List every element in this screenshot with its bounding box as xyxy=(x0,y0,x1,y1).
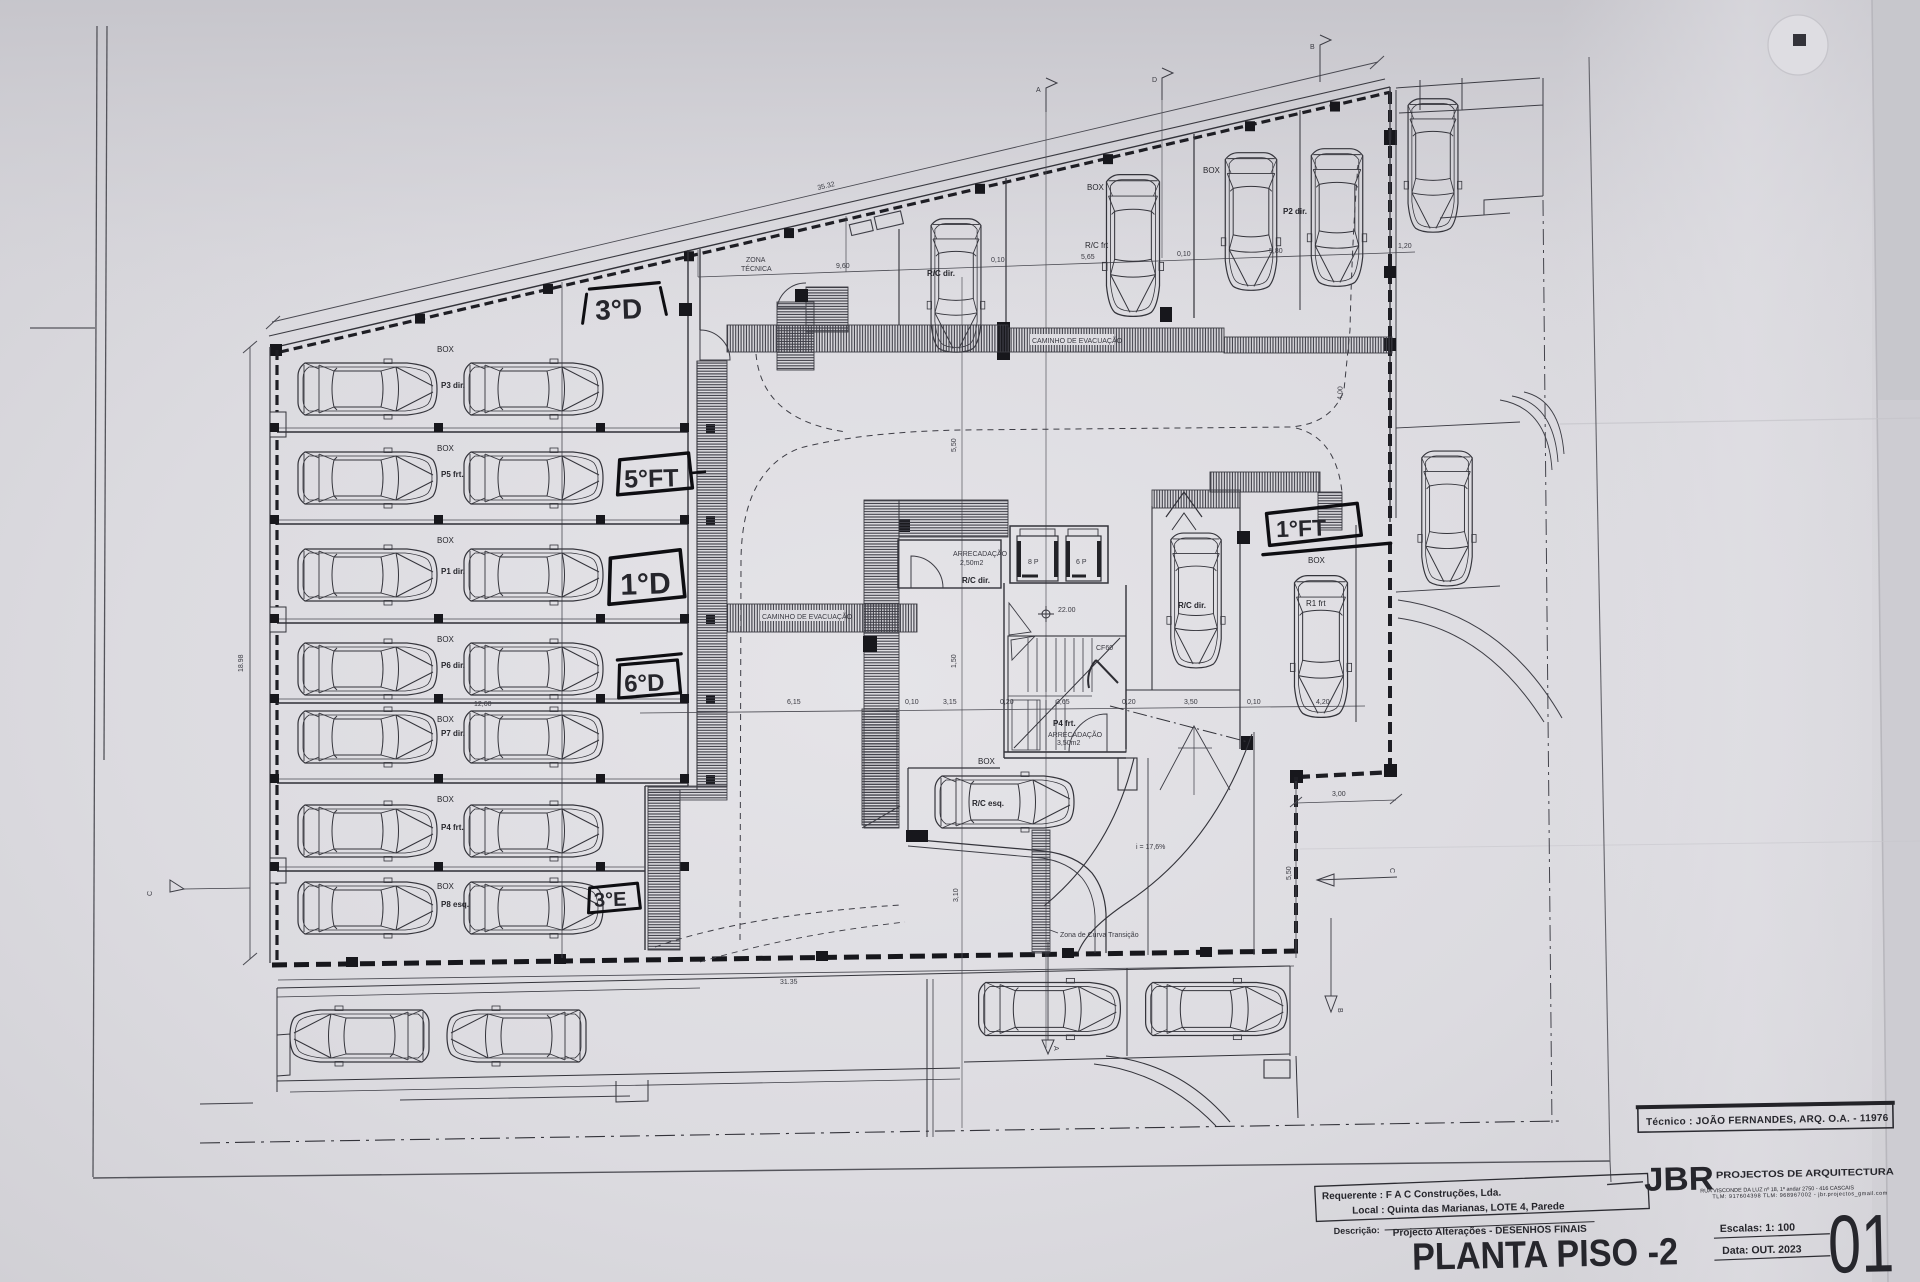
svg-text:3°E: 3°E xyxy=(594,889,627,912)
svg-text:R/C esq.: R/C esq. xyxy=(972,799,1004,808)
svg-text:5°FT: 5°FT xyxy=(624,464,679,493)
svg-text:3,00: 3,00 xyxy=(1332,791,1346,798)
svg-text:0,10: 0,10 xyxy=(1177,251,1191,258)
svg-text:1,20: 1,20 xyxy=(1398,243,1412,250)
svg-text:CAMINHO DE EVACUAÇÃO: CAMINHO DE EVACUAÇÃO xyxy=(1032,336,1123,345)
svg-text:9,60: 9,60 xyxy=(836,263,850,270)
svg-text:6 P: 6 P xyxy=(1076,559,1087,566)
svg-text:A: A xyxy=(1052,1046,1059,1051)
svg-text:4,20: 4,20 xyxy=(1316,699,1330,706)
svg-text:BOX: BOX xyxy=(978,757,996,766)
svg-text:P1 dir.: P1 dir. xyxy=(441,567,465,576)
svg-text:01: 01 xyxy=(1827,1198,1895,1282)
svg-text:0,20: 0,20 xyxy=(1000,699,1014,706)
svg-text:18.98: 18.98 xyxy=(238,654,245,672)
svg-text:4,00: 4,00 xyxy=(1337,386,1344,400)
svg-text:3°D: 3°D xyxy=(595,293,643,326)
svg-text:BOX: BOX xyxy=(1308,556,1326,565)
svg-text:CF60: CF60 xyxy=(1096,645,1113,652)
svg-text:Descrição:: Descrição: xyxy=(1334,1225,1380,1236)
svg-text:P6 dir.: P6 dir. xyxy=(441,661,465,670)
svg-text:P7 dir.: P7 dir. xyxy=(441,729,465,738)
svg-text:ARRECADAÇÃO: ARRECADAÇÃO xyxy=(953,549,1008,558)
svg-text:B: B xyxy=(1336,1008,1343,1013)
svg-text:BOX: BOX xyxy=(437,795,455,804)
svg-text:Data: OUT. 2023: Data: OUT. 2023 xyxy=(1722,1243,1802,1257)
svg-text:BOX: BOX xyxy=(437,536,455,545)
svg-text:2,50m2: 2,50m2 xyxy=(960,560,983,567)
svg-text:ARRECADAÇÃO: ARRECADAÇÃO xyxy=(1048,730,1103,739)
svg-text:1,50: 1,50 xyxy=(951,654,958,668)
svg-text:ZONA: ZONA xyxy=(746,257,766,264)
svg-text:P3 dir.: P3 dir. xyxy=(441,381,465,390)
svg-text:Zona de Curva Transição: Zona de Curva Transição xyxy=(1060,932,1139,939)
svg-text:0,10: 0,10 xyxy=(905,699,919,706)
svg-text:1°D: 1°D xyxy=(620,567,671,602)
svg-text:R/C frt: R/C frt xyxy=(1085,241,1109,250)
svg-text:D: D xyxy=(1152,77,1157,84)
svg-text:BOX: BOX xyxy=(437,444,455,453)
svg-text:R/C dir.: R/C dir. xyxy=(927,269,955,278)
svg-text:B: B xyxy=(1310,44,1315,51)
svg-text:BOX: BOX xyxy=(437,345,455,354)
svg-text:0,10: 0,10 xyxy=(1247,699,1261,706)
svg-text:CAMINHO DE EVACUAÇÃO: CAMINHO DE EVACUAÇÃO xyxy=(762,612,853,621)
svg-text:BOX: BOX xyxy=(1087,183,1105,192)
svg-text:PLANTA PISO -2: PLANTA PISO -2 xyxy=(1412,1231,1679,1279)
svg-text:i = 17,6%: i = 17,6% xyxy=(1136,844,1165,851)
svg-text:P2 dir.: P2 dir. xyxy=(1283,207,1307,216)
svg-text:31.35: 31.35 xyxy=(780,979,798,986)
svg-text:3,50m2: 3,50m2 xyxy=(1057,740,1080,747)
svg-text:6°D: 6°D xyxy=(624,669,665,697)
svg-text:3,65: 3,65 xyxy=(1056,699,1070,706)
svg-text:BOX: BOX xyxy=(1203,166,1221,175)
svg-text:3,15: 3,15 xyxy=(943,699,957,706)
svg-text:C: C xyxy=(1388,868,1395,873)
svg-text:P5 frt.: P5 frt. xyxy=(441,470,464,479)
svg-text:R1 frt: R1 frt xyxy=(1306,599,1326,608)
svg-text:BOX: BOX xyxy=(437,882,455,891)
svg-text:22.00: 22.00 xyxy=(1058,607,1076,614)
svg-text:12,60: 12,60 xyxy=(474,701,492,708)
svg-text:A: A xyxy=(1036,87,1041,94)
svg-text:5,50: 5,50 xyxy=(951,438,958,452)
svg-text:3,10: 3,10 xyxy=(953,888,960,902)
svg-text:R/C dir.: R/C dir. xyxy=(1178,601,1206,610)
svg-text:Escalas: 1: 100: Escalas: 1: 100 xyxy=(1720,1221,1796,1235)
svg-text:C: C xyxy=(147,891,154,896)
svg-text:8 P: 8 P xyxy=(1028,559,1039,566)
svg-text:5,65: 5,65 xyxy=(1081,254,1095,261)
svg-text:BOX: BOX xyxy=(437,635,455,644)
svg-text:3,50: 3,50 xyxy=(1184,699,1198,706)
svg-text:P8 esq.: P8 esq. xyxy=(441,900,469,909)
svg-text:6,15: 6,15 xyxy=(787,699,801,706)
svg-text:5,50: 5,50 xyxy=(1286,866,1293,880)
svg-text:0,10: 0,10 xyxy=(991,257,1005,264)
svg-text:BOX: BOX xyxy=(437,715,455,724)
svg-text:P4 frt.: P4 frt. xyxy=(441,823,464,832)
svg-text:0,20: 0,20 xyxy=(1122,699,1136,706)
svg-text:1°FT: 1°FT xyxy=(1276,514,1327,542)
svg-text:P4 frt.: P4 frt. xyxy=(1053,719,1076,728)
svg-text:R/C dir.: R/C dir. xyxy=(962,576,990,585)
svg-text:TÉCNICA: TÉCNICA xyxy=(741,264,772,273)
